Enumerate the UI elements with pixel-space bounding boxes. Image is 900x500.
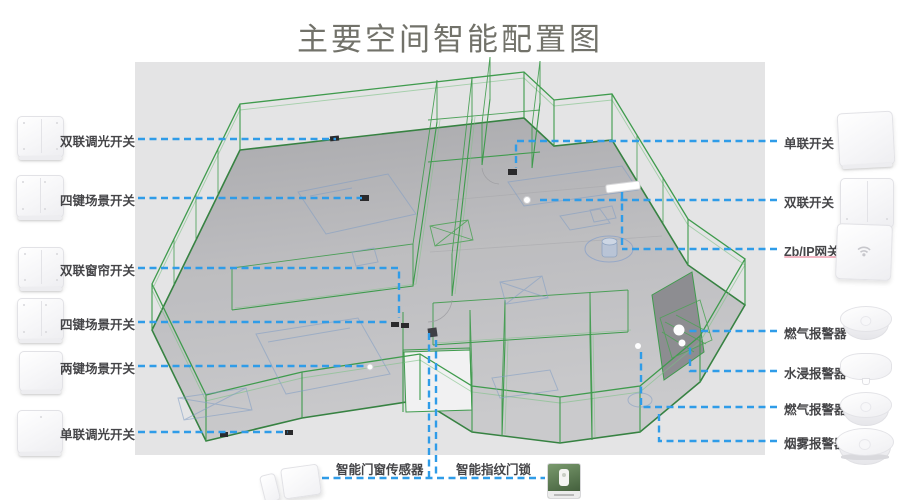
- door-window-sensor-icon: [280, 464, 322, 500]
- device-label: 双联窗帘开关: [60, 260, 138, 279]
- gas-alarm-icon: [840, 392, 892, 430]
- four-key-scene-switch-icon: [17, 298, 64, 341]
- single-rocker-switch-icon: [17, 410, 63, 454]
- device-label: 两键场景开关: [60, 358, 138, 377]
- zigbee-ip-gateway-icon: [835, 223, 893, 281]
- gas-alarm-marker: [635, 343, 641, 349]
- wall-switch-marker: [508, 169, 517, 175]
- device-label: 智能门窗传感器: [336, 459, 424, 478]
- double-curtain-switch-icon: [18, 247, 64, 289]
- device-label: 水浸报警器: [784, 363, 847, 382]
- wifi-glyph: [854, 242, 875, 258]
- entrance-recess: [404, 350, 472, 412]
- wall-switch-marker: [401, 323, 409, 328]
- ceiling-device-marker: [524, 197, 531, 204]
- device-label: 燃气报警器: [784, 323, 847, 342]
- gas-alarm-icon: [840, 306, 892, 344]
- single-rocker-switch-icon: [837, 111, 896, 168]
- two-key-scene-switch-icon: [19, 351, 63, 392]
- water-alarm-marker: [679, 340, 686, 347]
- wall-switch-marker: [391, 322, 399, 327]
- double-rocker-switch-icon: [17, 116, 64, 158]
- water-leak-alarm-icon: [840, 350, 892, 386]
- device-label: 单联开关: [784, 133, 834, 152]
- device-label: 双联调光开关: [60, 131, 138, 150]
- smoke-alarm-icon: [836, 428, 894, 470]
- device-label: 单联调光开关: [60, 424, 138, 443]
- device-label: 燃气报警器: [784, 399, 847, 418]
- device-label: 四键场景开关: [60, 314, 138, 333]
- double-rocker-switch-icon: [840, 178, 894, 228]
- gateway-cylinder-marker: [602, 238, 617, 257]
- device-label: 四键场景开关: [60, 190, 138, 209]
- four-key-scene-switch-icon: [16, 175, 64, 218]
- wall-switch-marker: [285, 430, 293, 435]
- device-label: 双联开关: [784, 192, 834, 211]
- ceiling-device-marker: [367, 364, 373, 370]
- fingerprint-door-lock-icon: [547, 463, 581, 499]
- device-label: 智能指纹门锁: [456, 459, 531, 478]
- gas-alarm-marker: [674, 325, 685, 336]
- smart-home-configuration-diagram: 主要空间智能配置图: [0, 0, 900, 500]
